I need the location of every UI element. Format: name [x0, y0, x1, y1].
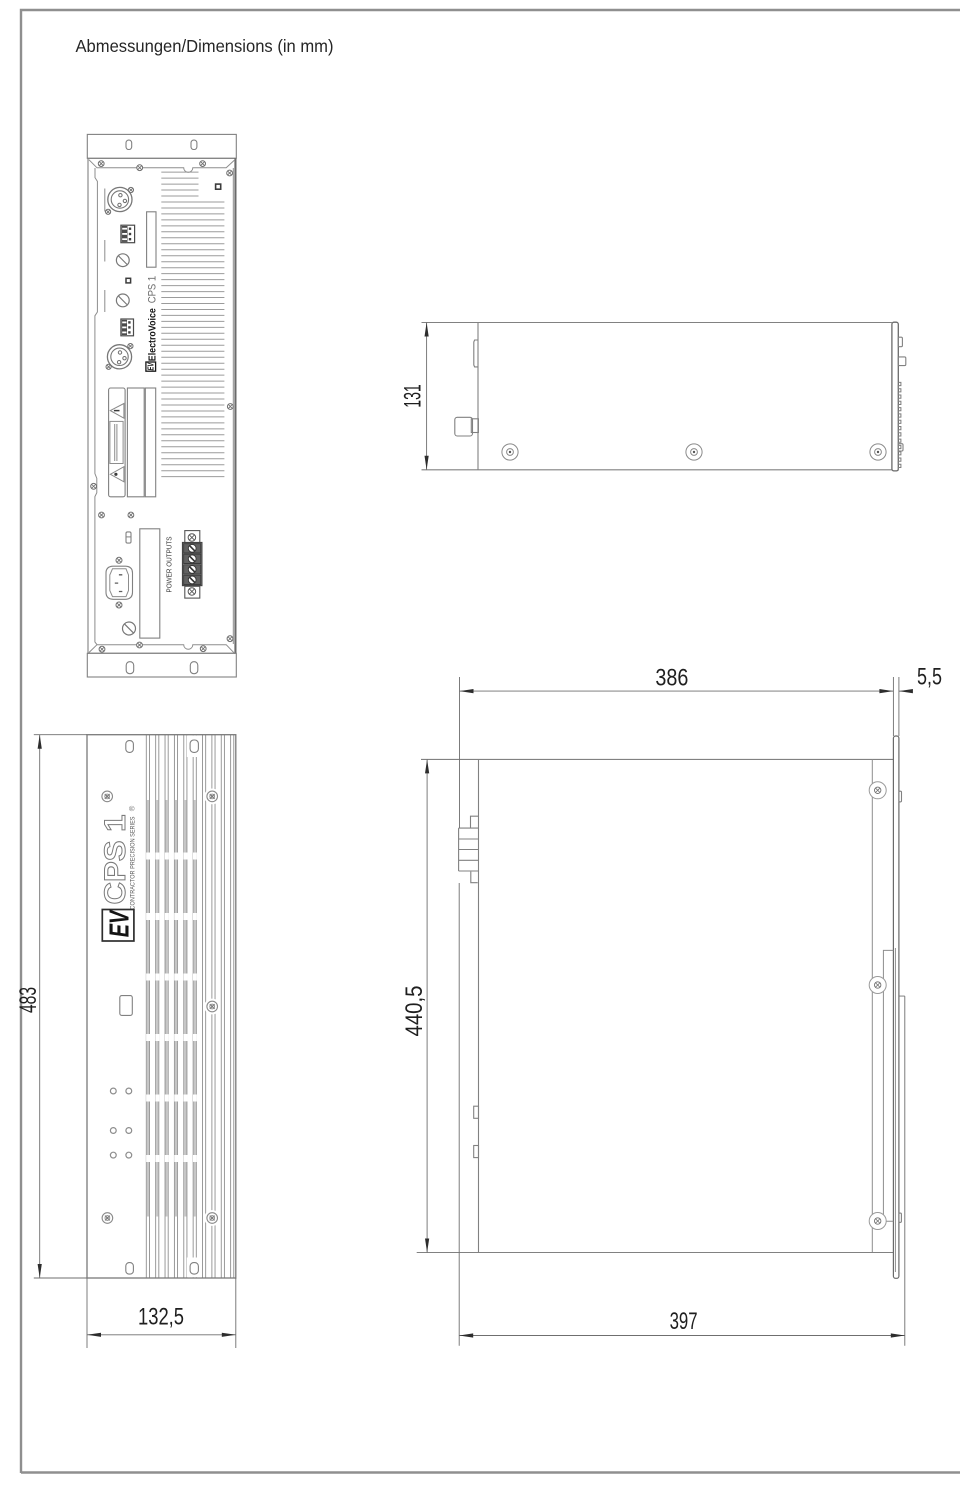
svg-text:386: 386 — [655, 664, 688, 691]
svg-text:131: 131 — [399, 384, 426, 408]
svg-text:EV: EV — [104, 909, 135, 937]
svg-text:Abmessungen/Dimensions (in mm): Abmessungen/Dimensions (in mm) — [76, 36, 334, 56]
svg-text:132,5: 132,5 — [138, 1304, 184, 1331]
svg-text:5,5: 5,5 — [917, 664, 942, 691]
svg-text:CONTRACTOR PRECISION SERIES: CONTRACTOR PRECISION SERIES — [130, 817, 137, 910]
svg-text:CPS 1: CPS 1 — [146, 276, 158, 304]
svg-text:483: 483 — [15, 987, 42, 1013]
svg-text:CPS 1: CPS 1 — [99, 815, 132, 905]
svg-text:EV: EV — [147, 362, 156, 370]
svg-text:ElectroVoice: ElectroVoice — [147, 308, 159, 361]
svg-text:POWER OUTPUTS: POWER OUTPUTS — [165, 537, 174, 593]
svg-text:397: 397 — [670, 1308, 698, 1335]
svg-text:440,5: 440,5 — [401, 986, 428, 1037]
svg-text:®: ® — [128, 805, 137, 811]
